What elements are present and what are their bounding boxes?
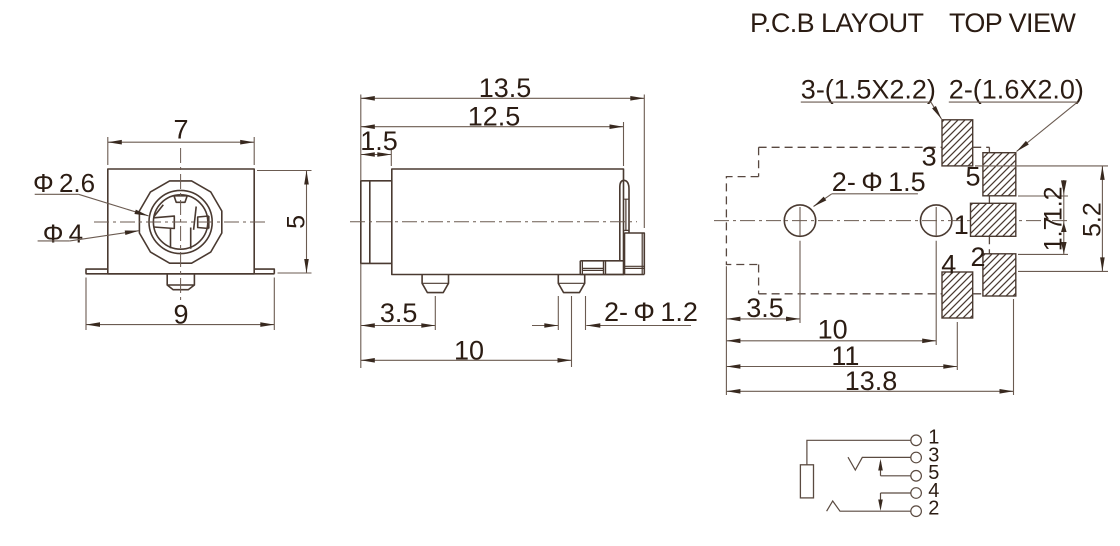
svg-text:2: 2 (970, 242, 985, 272)
svg-text:1.7: 1.7 (1040, 217, 1068, 252)
svg-text:4: 4 (941, 250, 956, 280)
svg-text:2-(1.6X2.0): 2-(1.6X2.0) (949, 75, 1084, 105)
svg-text:3.5: 3.5 (746, 293, 784, 323)
svg-text:5.2: 5.2 (1079, 202, 1107, 237)
svg-text:Φ 2.6: Φ 2.6 (33, 168, 95, 198)
svg-text:2- Φ 1.2: 2- Φ 1.2 (604, 297, 698, 327)
svg-text:13.8: 13.8 (845, 366, 898, 396)
svg-text:12.5: 12.5 (468, 102, 521, 132)
svg-text:P.C.B LAYOUT: P.C.B LAYOUT (750, 8, 923, 38)
svg-text:1: 1 (954, 210, 969, 240)
svg-text:3.5: 3.5 (380, 298, 418, 328)
svg-text:1.2: 1.2 (1040, 186, 1068, 221)
svg-text:10: 10 (454, 336, 484, 366)
svg-text:TOP VIEW: TOP VIEW (949, 8, 1076, 38)
svg-text:13.5: 13.5 (479, 73, 532, 103)
svg-text:2- Φ 1.5: 2- Φ 1.5 (832, 167, 926, 197)
svg-text:Φ 4: Φ 4 (43, 219, 83, 249)
svg-text:10: 10 (818, 315, 848, 345)
svg-text:5: 5 (283, 215, 311, 229)
svg-text:9: 9 (173, 299, 188, 329)
svg-text:7: 7 (173, 115, 188, 145)
svg-text:1.5: 1.5 (360, 126, 398, 156)
svg-text:3-(1.5X2.2): 3-(1.5X2.2) (801, 75, 936, 105)
svg-text:2: 2 (928, 497, 939, 519)
